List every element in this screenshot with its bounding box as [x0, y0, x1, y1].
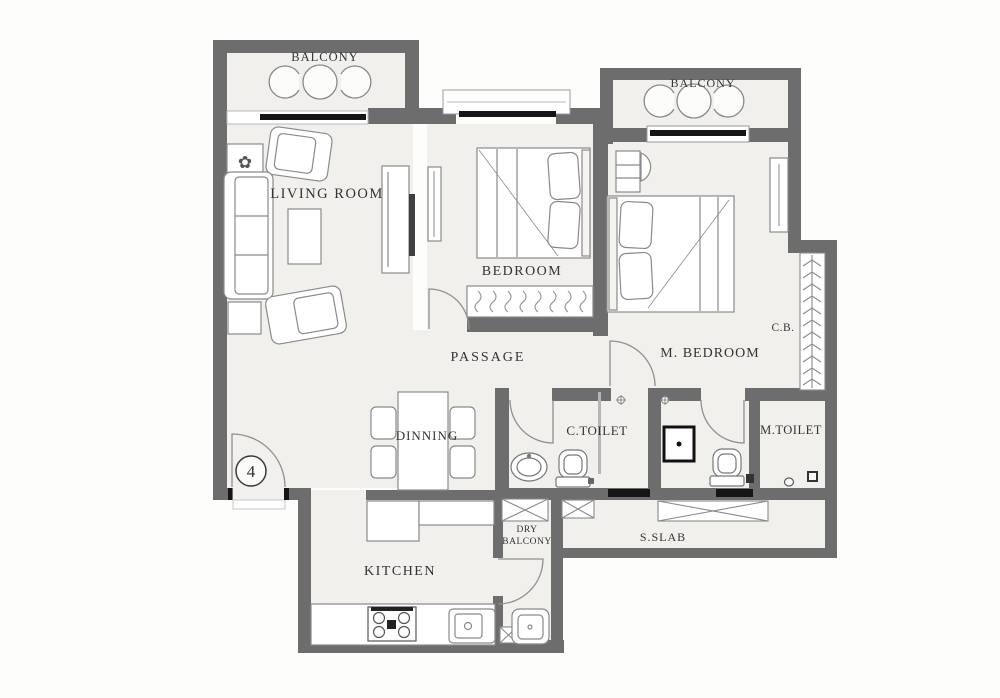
dining-chair [450, 446, 475, 478]
washbasin [511, 453, 547, 481]
pillow [547, 201, 580, 249]
room-label-ctoilet: C.TOILET [566, 423, 627, 438]
living-balcony-window-bar [260, 114, 366, 120]
floor-gap2 [610, 388, 649, 401]
room-label-cupboard: C.B. [771, 322, 794, 334]
wall-segment [825, 388, 837, 558]
wall-segment [562, 548, 837, 558]
room-label-balcony-right: BALCONY [670, 76, 735, 90]
wall-segment [551, 488, 563, 652]
bed [607, 196, 734, 312]
wash-sink [512, 609, 549, 644]
wall-segment [748, 128, 789, 142]
coffee-table [288, 209, 321, 264]
floor-mbed-nook [593, 336, 608, 388]
wall-segment [366, 490, 496, 500]
floor-mbed-east-strip [788, 253, 800, 388]
toilet-wc [710, 449, 744, 486]
dry-balcony-fittings [512, 609, 549, 644]
wall-segment [368, 108, 445, 124]
kitchen-upper-counter [419, 501, 494, 525]
floor-entrance-gap [232, 488, 284, 500]
entrance-step [233, 500, 285, 509]
balcony-table [303, 65, 337, 99]
room-label-sslab: S.SLAB [640, 530, 686, 544]
floor-trap [785, 478, 794, 486]
wall-segment [495, 488, 837, 500]
pillow [619, 252, 653, 300]
wall-segment [648, 388, 661, 500]
floor-plan: ✿ [0, 0, 1000, 698]
armchair [265, 126, 333, 182]
wall-segment [788, 68, 801, 249]
wall-segment [495, 388, 509, 500]
floor-drain [588, 478, 594, 484]
threshold-mat [608, 489, 650, 497]
pillow [547, 152, 580, 200]
room-label-passage: PASSAGE [451, 350, 526, 365]
kitchen-upper-counter [367, 501, 419, 541]
room-label-kitchen: KITCHEN [364, 564, 436, 579]
floor-dry-door-gap [493, 558, 503, 596]
room-label-dry-balcony-1: DRY [516, 525, 537, 535]
room-label-bedroom: BEDROOM [482, 264, 563, 279]
wardrobe [467, 286, 593, 317]
floor-gap3 [700, 388, 746, 401]
mbed-balcony-window-bar [650, 130, 746, 136]
kitchen-sink [449, 609, 495, 643]
wall-segment [825, 253, 837, 390]
room-label-living-room: LIVING ROOM [270, 186, 384, 202]
bedroom-furniture [467, 148, 593, 317]
floor-gap1 [508, 388, 553, 401]
wall-segment [611, 128, 647, 142]
wall-segment [749, 388, 760, 500]
floor-bedroom-door-gap [427, 317, 469, 332]
tv [409, 194, 415, 256]
balcony-chair [341, 66, 371, 98]
side-table [228, 302, 261, 334]
dining-chair [371, 407, 396, 439]
door-jamb [284, 488, 289, 500]
toilet-wc [556, 450, 590, 487]
dining-chair [371, 446, 396, 478]
bed [477, 148, 590, 258]
balcony-left-set [269, 65, 371, 99]
tap-point [808, 472, 817, 481]
shower-mixer [746, 474, 754, 483]
wall-segment [788, 240, 837, 253]
washing-machine [664, 427, 694, 461]
unit-number: 4 [247, 462, 256, 481]
floor-kitchen-entry [311, 490, 366, 501]
room-label-balcony-left: BALCONY [291, 50, 358, 64]
room-label-dry-balcony-2: BALCONY [502, 537, 551, 547]
wall-segment [467, 317, 608, 332]
room-label-master-bedroom: M. BEDROOM [660, 346, 759, 361]
pillow [619, 201, 653, 249]
bedroom-window-bar [459, 111, 556, 117]
door-jamb [228, 488, 232, 500]
louver-box [658, 501, 768, 521]
sofa [224, 172, 273, 299]
wall-segment [552, 388, 611, 401]
threshold-mat [716, 489, 753, 497]
wall-segment [298, 490, 311, 652]
cupboard-unit [800, 253, 825, 390]
balcony-chair [269, 66, 299, 98]
room-label-dinning: DINNING [396, 428, 459, 443]
plant-icon: ✿ [238, 153, 252, 173]
louver-box [502, 499, 548, 521]
louver-box [562, 500, 594, 518]
floor-plan-drawing: ✿ [0, 0, 1000, 698]
plant-table: ✿ [227, 144, 263, 175]
room-label-mtoilet: M.TOILET [760, 423, 822, 437]
gas-stove [368, 607, 416, 641]
